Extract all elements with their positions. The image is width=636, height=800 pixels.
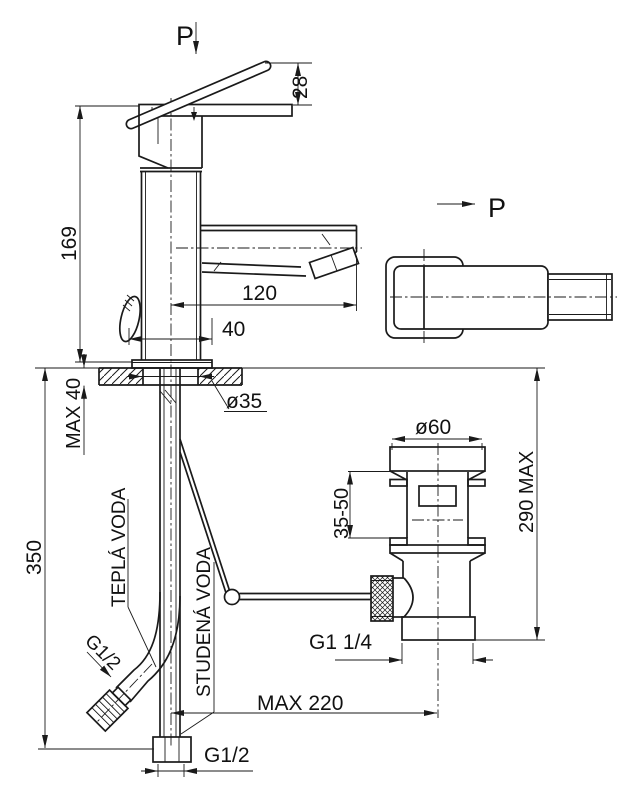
dim-label-dia35: ø35 xyxy=(226,390,262,413)
technical-drawing-page: P xyxy=(0,0,636,800)
dim-label-290max: 290 MAX xyxy=(516,451,538,533)
waste-overflow-window xyxy=(419,486,456,506)
waste-outlet xyxy=(402,617,475,640)
waste-top-cap xyxy=(390,447,485,471)
lever-base-top xyxy=(394,266,548,329)
shank-nut xyxy=(153,737,191,762)
base-plate xyxy=(132,360,212,368)
spout xyxy=(176,226,362,279)
dimension-35-50: 35-50 xyxy=(331,472,392,540)
dim-label-35-50: 35-50 xyxy=(331,488,353,539)
dim-label-dia60: ø60 xyxy=(415,416,451,439)
dimension-350: 350 xyxy=(23,368,154,749)
supply-labels: TEPLÁ VODA STUDENÁ VODA G1/2 xyxy=(80,487,215,734)
dimension-40: 40 xyxy=(129,318,245,345)
section-label-side: P xyxy=(488,193,506,223)
linkage-ball-joint xyxy=(225,590,240,605)
waste-lower-flange xyxy=(390,545,485,553)
cartridge-side-view: P xyxy=(386,193,617,346)
rod-socket-boss xyxy=(404,578,413,617)
dim-label-169: 169 xyxy=(58,226,81,261)
hot-water-label: TEPLÁ VODA xyxy=(109,487,130,607)
dimension-g12-shank: G1/2 xyxy=(141,744,253,777)
dimension-g114: G1 1/4 xyxy=(309,631,493,664)
dimension-dia35: ø35 xyxy=(127,377,267,414)
dimension-max40: MAX 40 xyxy=(63,354,85,455)
mixer-neck xyxy=(139,116,202,172)
faucet-dimension-drawing: P xyxy=(0,0,636,800)
pop-up-pull-knob xyxy=(116,295,144,344)
dimension-28: 28 xyxy=(265,63,312,105)
dim-label-120: 120 xyxy=(242,282,277,305)
pop-up-waste xyxy=(371,443,485,718)
dim-label-g114: G1 1/4 xyxy=(309,631,372,654)
section-label-top: P xyxy=(176,21,194,51)
dim-label-40: 40 xyxy=(222,318,245,341)
cold-supply-tube xyxy=(153,368,191,762)
dim-label-28: 28 xyxy=(289,76,312,99)
cold-water-label: STUDENÁ VODA xyxy=(194,547,215,697)
dim-label-g12-shank: G1/2 xyxy=(204,744,250,767)
dim-label-max220: MAX 220 xyxy=(257,692,343,715)
knurled-nut xyxy=(371,576,393,621)
mounting-deck xyxy=(35,368,545,385)
dim-label-max40: MAX 40 xyxy=(63,378,85,449)
dim-label-350: 350 xyxy=(23,540,46,575)
dimension-290max: 290 MAX xyxy=(475,368,545,640)
dimension-dia60: ø60 xyxy=(392,416,482,450)
